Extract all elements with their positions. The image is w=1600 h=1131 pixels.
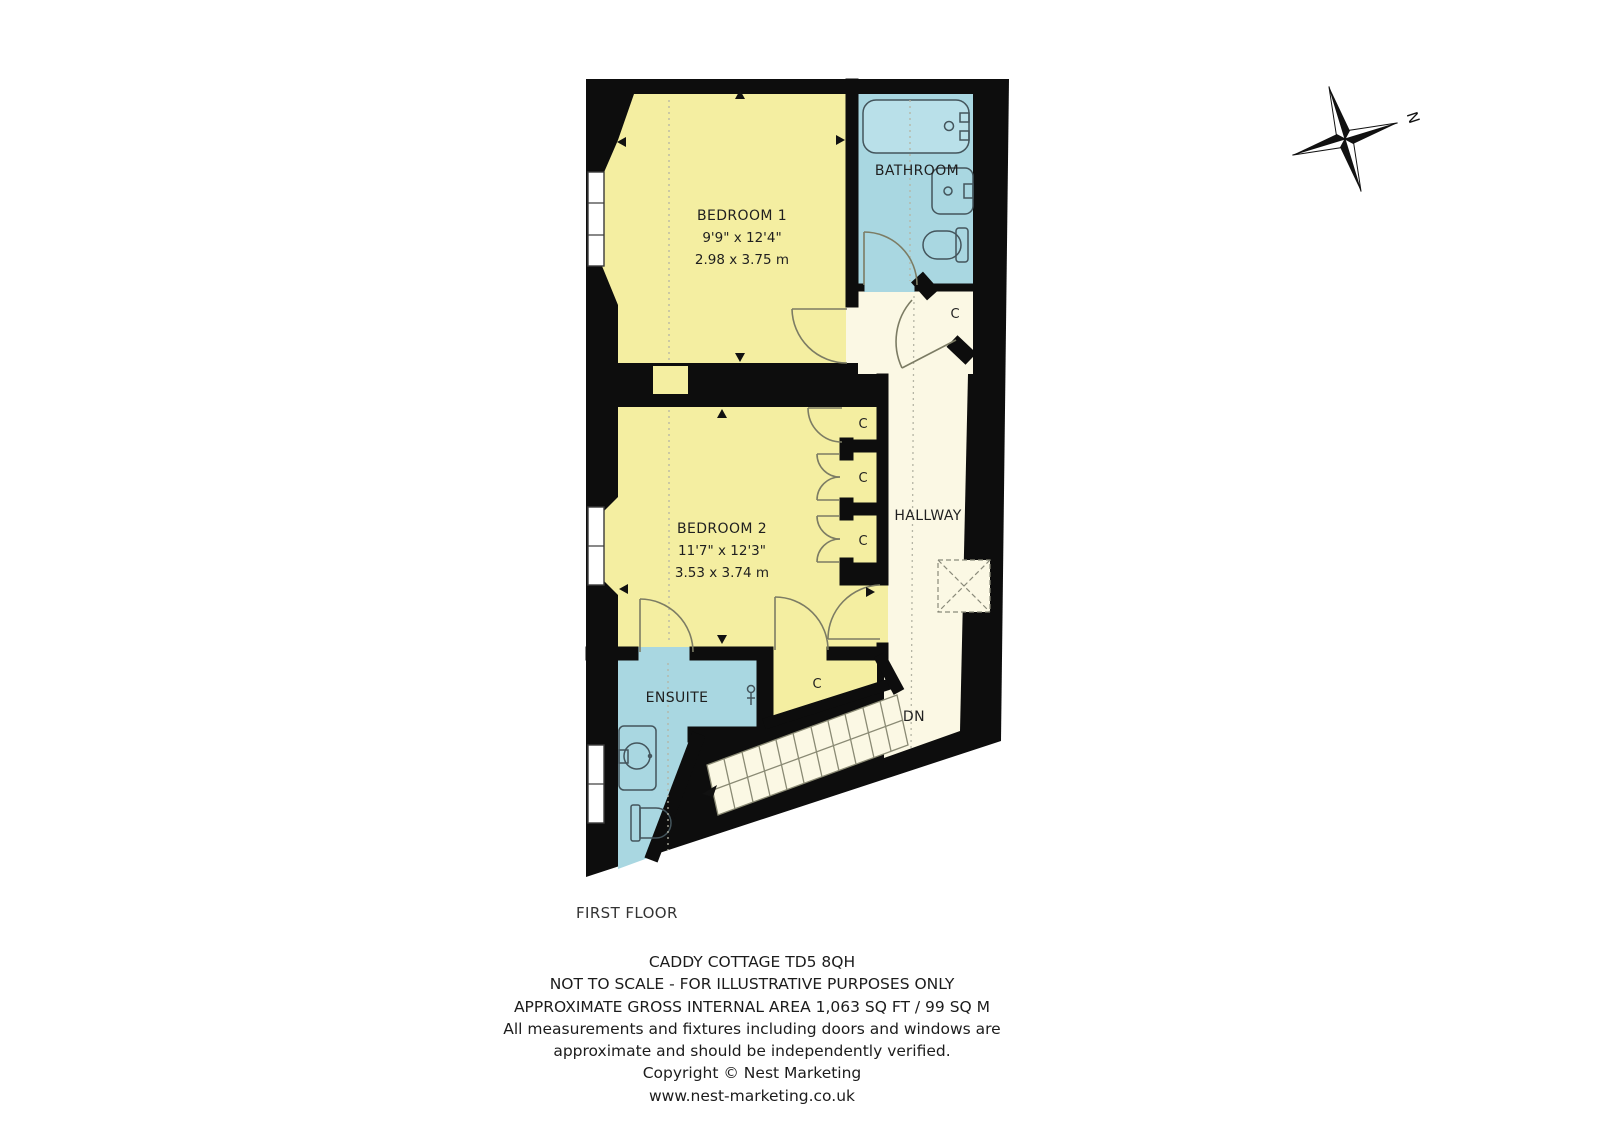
closet3-label: C xyxy=(858,534,867,549)
loft-hatch xyxy=(938,560,990,612)
footer-text-block: CADDY COTTAGE TD5 8QH NOT TO SCALE - FOR… xyxy=(352,951,1152,1107)
bedroom1-recess xyxy=(653,366,688,394)
hallway-label: HALLWAY xyxy=(894,508,961,524)
footer-disclaimer: NOT TO SCALE - FOR ILLUSTRATIVE PURPOSES… xyxy=(352,973,1152,995)
window-ensuite xyxy=(588,745,604,823)
bathtub-icon xyxy=(863,100,969,153)
closet-bottom-label: C xyxy=(812,677,821,692)
compass-north-label: N xyxy=(1403,110,1424,126)
room-bedroom1-floor xyxy=(602,94,846,363)
bedroom1-dim-metric: 2.98 x 3.75 m xyxy=(695,252,789,268)
closet-top-label: C xyxy=(950,307,959,322)
closet2-label: C xyxy=(858,471,867,486)
compass-rose: N xyxy=(1276,70,1423,207)
threshold-closet-bottom xyxy=(773,647,827,660)
bedroom2-label: BEDROOM 2 xyxy=(677,521,767,537)
bedroom1-dim-imperial: 9'9" x 12'4" xyxy=(702,230,781,246)
bedroom2-dim-metric: 3.53 x 3.74 m xyxy=(675,565,769,581)
ensuite-label: ENSUITE xyxy=(646,690,709,706)
threshold-ensuite xyxy=(638,647,690,660)
footer-copyright: Copyright © Nest Marketing xyxy=(352,1062,1152,1084)
window-bedroom1 xyxy=(588,172,604,266)
floor-plan: BEDROOM 1 9'9" x 12'4" 2.98 x 3.75 m BED… xyxy=(586,79,1009,877)
bedroom2-dim-imperial: 11'7" x 12'3" xyxy=(678,543,766,559)
threshold-bathroom xyxy=(864,284,915,292)
window-bedroom2 xyxy=(588,507,604,585)
bathroom-label: BATHROOM xyxy=(875,163,959,179)
closet1-label: C xyxy=(858,417,867,432)
page: BEDROOM 1 9'9" x 12'4" 2.98 x 3.75 m BED… xyxy=(0,0,1600,1131)
bedroom1-label: BEDROOM 1 xyxy=(697,208,787,224)
threshold-bedroom2 xyxy=(877,585,888,643)
threshold-bedroom1 xyxy=(846,307,858,363)
footer-note-2: approximate and should be independently … xyxy=(352,1040,1152,1062)
footer-note-1: All measurements and fixtures including … xyxy=(352,1018,1152,1040)
footer-website: www.nest-marketing.co.uk xyxy=(352,1085,1152,1107)
footer-address: CADDY COTTAGE TD5 8QH xyxy=(352,951,1152,973)
floor-title: FIRST FLOOR xyxy=(576,904,678,922)
footer-area: APPROXIMATE GROSS INTERNAL AREA 1,063 SQ… xyxy=(352,996,1152,1018)
stairs-dn-label: DN xyxy=(903,709,925,725)
compass-star-icon xyxy=(1276,70,1413,207)
